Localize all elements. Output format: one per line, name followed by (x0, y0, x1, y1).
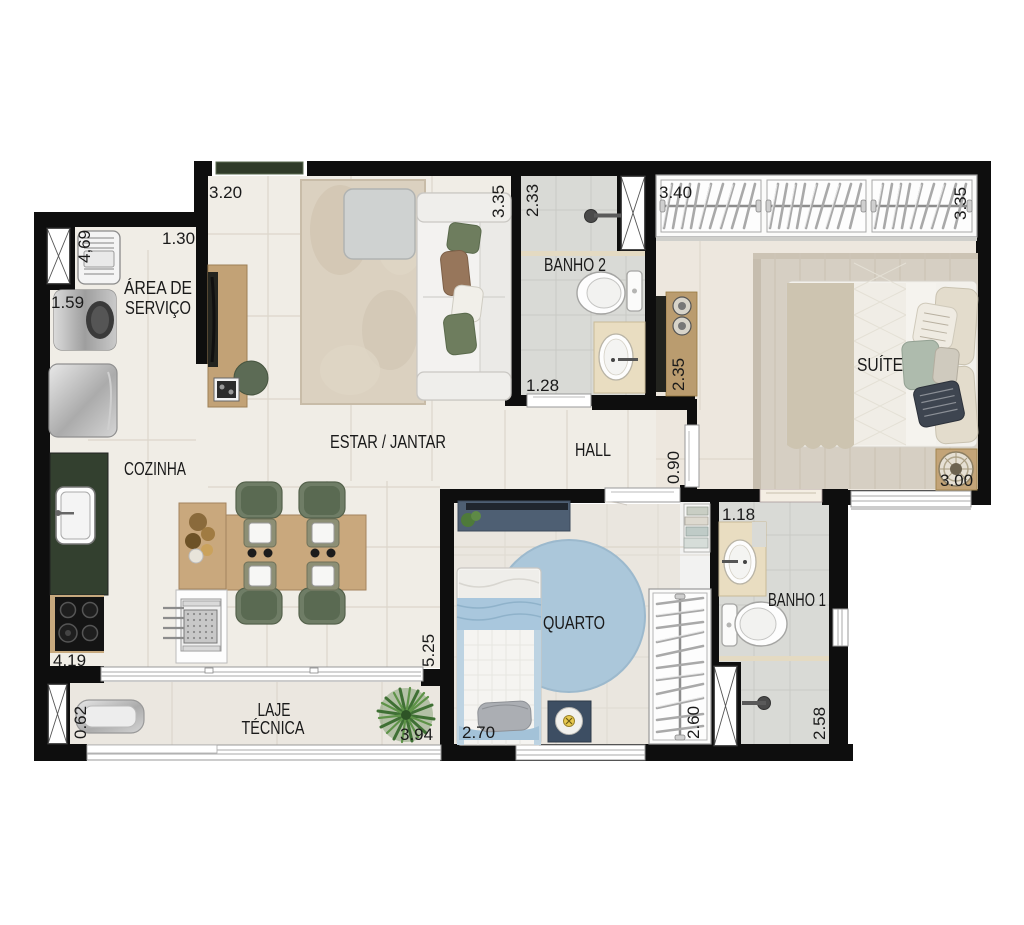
svg-text:2.35: 2.35 (669, 358, 688, 391)
svg-text:5.25: 5.25 (419, 634, 438, 667)
svg-text:4.19: 4.19 (53, 651, 86, 670)
svg-text:SERVIÇO: SERVIÇO (125, 297, 191, 318)
svg-text:3.94: 3.94 (400, 725, 433, 744)
svg-text:3.20: 3.20 (209, 183, 242, 202)
svg-text:2.70: 2.70 (462, 723, 495, 742)
svg-text:BANHO 2: BANHO 2 (544, 254, 606, 275)
svg-text:ÁREA DE: ÁREA DE (124, 277, 192, 298)
svg-text:3.40: 3.40 (659, 183, 692, 202)
svg-text:0.62: 0.62 (71, 706, 90, 739)
svg-text:1.59: 1.59 (51, 293, 84, 312)
svg-text:QUARTO: QUARTO (543, 612, 605, 633)
svg-text:3.35: 3.35 (489, 185, 508, 218)
svg-text:4,69: 4,69 (75, 230, 94, 263)
svg-text:TÉCNICA: TÉCNICA (242, 717, 306, 738)
svg-text:ESTAR / JANTAR: ESTAR / JANTAR (330, 431, 446, 452)
svg-text:BANHO 1: BANHO 1 (768, 589, 826, 610)
svg-text:COZINHA: COZINHA (124, 458, 186, 479)
svg-text:2.60: 2.60 (684, 706, 703, 739)
svg-text:1.30: 1.30 (162, 229, 195, 248)
svg-text:1.28: 1.28 (526, 376, 559, 395)
svg-text:1.18: 1.18 (722, 505, 755, 524)
svg-text:2.33: 2.33 (523, 184, 542, 217)
svg-text:0.90: 0.90 (664, 451, 683, 484)
svg-text:2.58: 2.58 (810, 707, 829, 740)
svg-text:HALL: HALL (575, 439, 611, 460)
svg-text:3.00: 3.00 (940, 471, 973, 490)
svg-text:3.35: 3.35 (951, 187, 970, 220)
svg-text:SUÍTE: SUÍTE (857, 354, 903, 375)
